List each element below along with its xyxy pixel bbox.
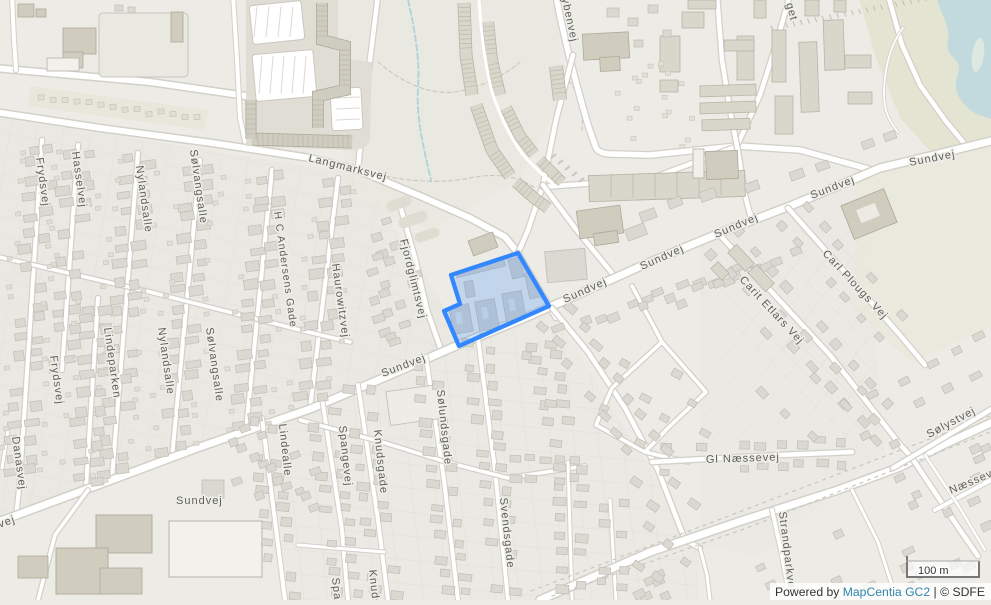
svg-text:Sundvej: Sundvej <box>176 495 223 507</box>
svg-text:Powered by MapCentia GC2 | © S: Powered by MapCentia GC2 | © SDFE <box>775 585 985 599</box>
svg-text:100 m: 100 m <box>918 565 949 577</box>
